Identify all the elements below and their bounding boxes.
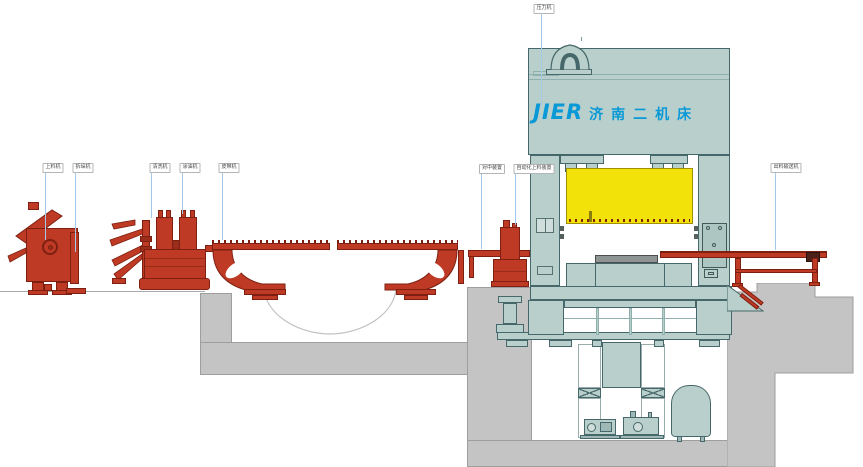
pit-arc-outline [262, 290, 398, 337]
belt-arch-right [380, 248, 459, 294]
callout-destacker: 拆垛机 [72, 163, 93, 173]
leader-line [75, 172, 76, 252]
leader-line [481, 173, 482, 249]
washer-tower-right [179, 217, 197, 251]
cushion-brace-right [641, 388, 665, 398]
pump-pad-right [620, 435, 664, 439]
feeder-base-plate [491, 281, 529, 287]
die-cushion-box [602, 342, 641, 388]
foundation-pad [699, 340, 720, 347]
tower-post [158, 210, 163, 218]
destacker-arm [6, 246, 30, 266]
belt-end-post [458, 250, 464, 284]
base-seam [494, 271, 526, 272]
pump-valve-stub2 [648, 412, 652, 418]
panel-knob [712, 243, 716, 247]
washer-foot [112, 278, 126, 284]
callout-washer: 清洗机 [149, 163, 170, 173]
callout-oiler: 涂油机 [179, 163, 200, 173]
window-mullion [545, 219, 546, 232]
body-seam [145, 266, 205, 267]
exit-mid-rail [735, 269, 817, 273]
exit-foot [809, 282, 820, 286]
guide-clip [694, 234, 698, 239]
feeder-pedestal-foot [496, 324, 524, 333]
washer-roller [140, 236, 152, 242]
feeder-pedestal-top [498, 296, 522, 303]
guide-clip [560, 226, 564, 231]
accumulator-tank [671, 385, 711, 437]
cushion-column-left [578, 344, 601, 388]
cushion-column-right [641, 344, 665, 388]
base-lintel [564, 300, 696, 308]
guide-clip [694, 226, 698, 231]
hydraulic-pump-left [584, 419, 616, 435]
conveyor-pit-left-wall [200, 293, 232, 343]
tank-leg-right [700, 436, 705, 442]
leader-line [775, 172, 776, 250]
callout-centering: 对中装置 [479, 164, 505, 174]
foundation-pad [592, 340, 602, 347]
upright-plate [537, 266, 553, 275]
bolster-seam [595, 264, 596, 287]
tower-post [190, 210, 195, 218]
lifting-lug [549, 40, 591, 70]
pump-pad-left [580, 435, 620, 439]
destacker-foot [66, 288, 86, 294]
cushion-brace-left [578, 388, 601, 398]
slide-window-ticks [569, 219, 690, 222]
washer-body [144, 249, 206, 280]
guide-clip [560, 234, 564, 239]
crown-seam2 [529, 79, 729, 80]
washer-base [139, 278, 210, 290]
pump-valve-stub [630, 411, 636, 418]
conveyor-pit-floor [200, 342, 490, 375]
press-foot-left [528, 300, 564, 335]
destacker-drum-hub [48, 245, 53, 250]
slide-window [566, 168, 693, 224]
arch-pad-right [404, 295, 428, 300]
tower-post [166, 210, 171, 218]
brand-logo: JIER 济南二机床 [533, 100, 723, 128]
destacker-stub [44, 284, 52, 291]
upright-window [536, 218, 554, 233]
leader-line [182, 172, 183, 214]
feeder-pedestal-stem [503, 303, 517, 324]
leader-line [222, 172, 223, 240]
destacker-top-box [28, 202, 39, 210]
exit-rail [660, 251, 827, 258]
leader-line [541, 13, 542, 107]
control-panel [702, 223, 727, 268]
bolster-seam [664, 264, 665, 287]
callout-belt-conveyor: 皮带机 [218, 163, 239, 173]
foundation-pad [654, 340, 664, 347]
pump-motor-circle [587, 423, 596, 432]
leader-line [151, 172, 152, 218]
press-line-diagram: JIER 济南二机床 [0, 0, 863, 467]
arch-pad-left [252, 295, 278, 300]
panel-slot [708, 272, 714, 275]
die-slab [595, 255, 658, 263]
panel-knob [718, 226, 722, 230]
callout-feeder: 上料机 [42, 163, 63, 173]
panel-knob [706, 226, 710, 230]
pump-block [600, 422, 612, 432]
leader-line [515, 173, 516, 225]
crown-antenna [581, 37, 582, 41]
base-tie [564, 318, 696, 319]
feeder-stand-base [493, 259, 527, 282]
feed-rail [468, 250, 530, 257]
slide-window-bracket [589, 211, 592, 222]
hydraulic-pump-right [623, 417, 659, 435]
feeder-stand-body [500, 227, 520, 260]
callout-exit-conveyor: 出料输送机 [770, 163, 801, 173]
panel-slot-box [704, 269, 718, 278]
callout-loading-device: 自动化上料装置 [513, 164, 554, 174]
washer-tower-left [156, 217, 173, 251]
belt-arch-left [211, 248, 289, 294]
callout-press: 压力机 [533, 4, 554, 14]
press-base-band [530, 286, 732, 300]
foundation-pad [506, 340, 528, 347]
foundation-pad [549, 340, 572, 347]
base-column [662, 308, 665, 335]
tank-leg-left [677, 436, 682, 442]
base-column [596, 308, 599, 335]
body-seam [145, 258, 205, 259]
bolster [566, 263, 692, 288]
leader-line [45, 172, 46, 240]
base-column [629, 308, 632, 335]
pump-motor-circle2 [633, 422, 643, 432]
brand-logo-chinese: 济南二机床 [589, 104, 699, 124]
